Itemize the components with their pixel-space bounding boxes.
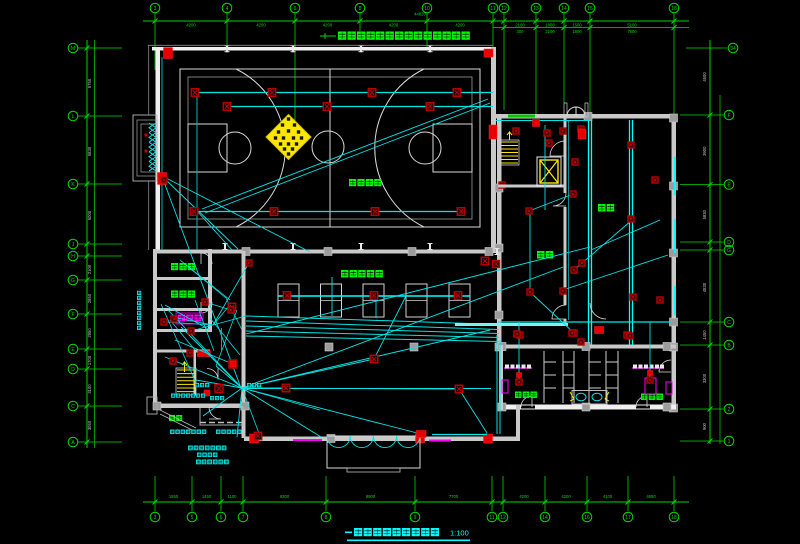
svg-text:4200: 4200 bbox=[389, 23, 399, 28]
svg-text:4: 4 bbox=[226, 6, 229, 12]
svg-text:16: 16 bbox=[584, 515, 590, 521]
svg-text:5: 5 bbox=[191, 515, 194, 521]
svg-text:8900: 8900 bbox=[366, 494, 376, 499]
svg-text:3050: 3050 bbox=[87, 420, 92, 430]
svg-text:17: 17 bbox=[625, 515, 631, 521]
svg-text:900: 900 bbox=[702, 422, 707, 430]
svg-text:2100: 2100 bbox=[545, 29, 555, 34]
svg-text:12: 12 bbox=[501, 6, 507, 12]
svg-text:4500: 4500 bbox=[702, 72, 707, 82]
svg-text:1800: 1800 bbox=[572, 29, 582, 34]
svg-text:11: 11 bbox=[490, 6, 495, 12]
svg-text:8: 8 bbox=[325, 515, 328, 521]
svg-text:4200: 4200 bbox=[256, 23, 266, 28]
svg-text:1700: 1700 bbox=[87, 355, 92, 365]
svg-text:5000: 5000 bbox=[87, 210, 92, 220]
svg-text:6: 6 bbox=[220, 515, 223, 521]
svg-text:13: 13 bbox=[533, 6, 539, 12]
svg-text:34: 34 bbox=[730, 46, 736, 52]
svg-text:9: 9 bbox=[414, 515, 417, 521]
svg-text:2850: 2850 bbox=[87, 293, 92, 303]
svg-text:M: M bbox=[71, 46, 75, 52]
svg-text:8300: 8300 bbox=[280, 494, 290, 499]
svg-text:1450: 1450 bbox=[702, 330, 707, 340]
svg-text:3900: 3900 bbox=[702, 146, 707, 156]
svg-text:1: 1 bbox=[728, 439, 731, 445]
svg-text:14: 14 bbox=[561, 6, 567, 12]
svg-text:12: 12 bbox=[500, 515, 506, 521]
svg-text:3: 3 bbox=[154, 515, 157, 521]
svg-text:C: C bbox=[71, 404, 75, 410]
svg-text:4200: 4200 bbox=[561, 494, 571, 499]
svg-text:7: 7 bbox=[242, 515, 245, 521]
svg-text:4100: 4100 bbox=[603, 494, 613, 499]
svg-text:5830: 5830 bbox=[87, 146, 92, 156]
svg-text:1:100: 1:100 bbox=[450, 529, 469, 538]
svg-text:G: G bbox=[71, 278, 75, 284]
svg-text:G: G bbox=[727, 248, 731, 254]
svg-text:15: 15 bbox=[587, 6, 593, 12]
svg-text:2: 2 bbox=[728, 407, 731, 413]
svg-text:11: 11 bbox=[489, 515, 494, 521]
svg-text:5830: 5830 bbox=[702, 209, 707, 219]
svg-text:5100: 5100 bbox=[627, 23, 637, 28]
svg-text:44820: 44820 bbox=[414, 12, 426, 17]
svg-text:3100: 3100 bbox=[87, 384, 92, 394]
svg-text:4830: 4830 bbox=[702, 282, 707, 292]
svg-text:6: 6 bbox=[294, 6, 297, 12]
svg-text:1450: 1450 bbox=[202, 494, 212, 499]
svg-text:18: 18 bbox=[671, 6, 677, 12]
svg-text:2100: 2100 bbox=[515, 23, 525, 28]
svg-text:F: F bbox=[71, 312, 74, 318]
svg-text:4200: 4200 bbox=[186, 23, 196, 28]
svg-text:C: C bbox=[727, 320, 731, 326]
svg-text:D: D bbox=[71, 367, 75, 373]
svg-text:L: L bbox=[72, 114, 75, 120]
svg-text:1550: 1550 bbox=[169, 494, 179, 499]
svg-text:2100: 2100 bbox=[87, 264, 92, 274]
svg-text:18: 18 bbox=[671, 515, 677, 521]
svg-text:1500: 1500 bbox=[572, 23, 582, 28]
svg-text:1100: 1100 bbox=[227, 494, 237, 499]
svg-text:3: 3 bbox=[154, 6, 157, 12]
svg-text:4200: 4200 bbox=[455, 23, 465, 28]
svg-text:F: F bbox=[727, 113, 730, 119]
svg-text:300: 300 bbox=[517, 29, 525, 34]
svg-text:1800: 1800 bbox=[545, 23, 555, 28]
svg-text:7800: 7800 bbox=[627, 29, 637, 34]
svg-text:2950: 2950 bbox=[87, 328, 92, 338]
svg-text:4200: 4200 bbox=[323, 23, 333, 28]
svg-text:8: 8 bbox=[359, 6, 362, 12]
svg-text:3300: 3300 bbox=[702, 373, 707, 383]
svg-text:4200: 4200 bbox=[519, 494, 529, 499]
svg-text:5750: 5750 bbox=[87, 78, 92, 88]
svg-text:14: 14 bbox=[542, 515, 548, 521]
svg-text:4650: 4650 bbox=[646, 494, 656, 499]
svg-text:7700: 7700 bbox=[449, 494, 459, 499]
svg-text:H: H bbox=[71, 254, 75, 260]
